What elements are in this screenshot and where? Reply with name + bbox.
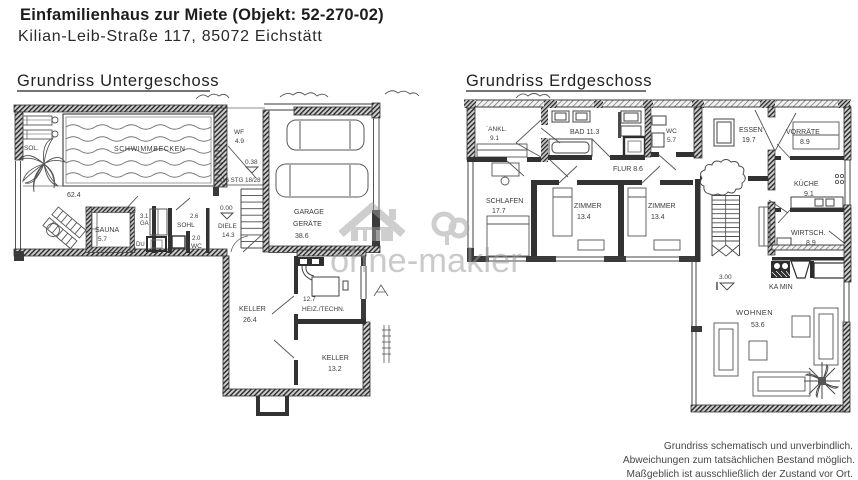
svg-text:17.7: 17.7 [492, 208, 506, 215]
svg-text:KELLER: KELLER [239, 306, 266, 313]
svg-text:Grundriss schematisch und unve: Grundriss schematisch und unverbindlich. [664, 441, 853, 452]
svg-text:Einfamilienhaus zur Miete (Obj: Einfamilienhaus zur Miete (Objekt: 52-27… [20, 6, 384, 24]
svg-text:SCHWIMMBECKEN: SCHWIMMBECKEN [114, 146, 186, 153]
svg-text:26.4: 26.4 [243, 317, 257, 324]
svg-text:Abweichungen zum tatsächlichen: Abweichungen zum tatsächlichen Bestand m… [623, 455, 855, 466]
svg-text:Grundriss Untergeschoss: Grundriss Untergeschoss [17, 72, 219, 90]
svg-text:13.4: 13.4 [651, 214, 665, 221]
svg-text:ohne-makler: ohne-makler [330, 242, 522, 280]
svg-text:WIRTSCH.: WIRTSCH. [791, 230, 826, 237]
svg-text:2.0: 2.0 [192, 236, 201, 242]
svg-text:SOHL: SOHL [177, 222, 195, 229]
svg-text:0.00: 0.00 [220, 205, 233, 212]
svg-text:GARAGE: GARAGE [294, 209, 324, 216]
svg-text:3.00: 3.00 [719, 274, 732, 281]
svg-text:0.38: 0.38 [245, 159, 258, 166]
svg-text:DU: DU [136, 242, 145, 248]
svg-text:GERÄTE: GERÄTE [293, 220, 322, 228]
svg-text:ZIMMER: ZIMMER [648, 203, 676, 210]
svg-text:3.1: 3.1 [140, 214, 149, 220]
svg-text:SAUNA: SAUNA [95, 227, 119, 234]
svg-text:HEIZ./TECHN.: HEIZ./TECHN. [302, 306, 345, 313]
svg-text:Maßgeblich ist ausschließlich: Maßgeblich ist ausschließlich der Zustan… [627, 469, 853, 480]
svg-text:13.4: 13.4 [577, 214, 591, 221]
svg-text:KA MIN: KA MIN [769, 284, 793, 291]
svg-text:WOHNEN: WOHNEN [736, 308, 773, 317]
svg-text:53.6: 53.6 [751, 322, 765, 329]
svg-text:WF: WF [234, 129, 244, 136]
svg-text:DIELE: DIELE [218, 223, 237, 230]
svg-text:2.6: 2.6 [190, 214, 199, 220]
svg-text:ZIMMER: ZIMMER [574, 203, 602, 210]
svg-text:16 STG 18/28: 16 STG 18/28 [222, 177, 261, 184]
svg-text:Grundriss Erdgeschoss: Grundriss Erdgeschoss [466, 72, 652, 90]
svg-text:ESSEN: ESSEN [739, 127, 763, 134]
svg-text:FLUR 8.6: FLUR 8.6 [613, 166, 643, 173]
svg-text:4.9: 4.9 [235, 138, 244, 145]
svg-text:SOL.: SOL. [24, 145, 39, 152]
svg-text:8.9: 8.9 [800, 139, 810, 146]
svg-text:WC: WC [666, 128, 677, 135]
svg-text:´ANKL.: ´ANKL. [486, 126, 507, 133]
svg-text:62.4: 62.4 [67, 192, 81, 199]
svg-text:38.6: 38.6 [295, 233, 309, 240]
svg-text:19.7: 19.7 [742, 137, 756, 144]
svg-text:BAD 11.3: BAD 11.3 [570, 129, 600, 136]
svg-text:5.7: 5.7 [98, 236, 107, 243]
svg-text:5.7: 5.7 [667, 137, 676, 144]
svg-text:GA: GA [140, 221, 149, 227]
svg-text:13.2: 13.2 [328, 366, 342, 373]
svg-text:9.1: 9.1 [490, 135, 499, 142]
svg-text:14.3: 14.3 [222, 232, 235, 239]
svg-text:WC: WC [191, 243, 202, 250]
svg-text:Kilian-Leib-Straße 117, 85072: Kilian-Leib-Straße 117, 85072 Eichstätt [18, 28, 323, 45]
svg-text:KÜCHE: KÜCHE [794, 180, 819, 188]
svg-text:KELLER: KELLER [322, 355, 349, 362]
svg-text:12.7: 12.7 [303, 296, 316, 303]
svg-text:SCHLAFEN: SCHLAFEN [486, 198, 523, 205]
